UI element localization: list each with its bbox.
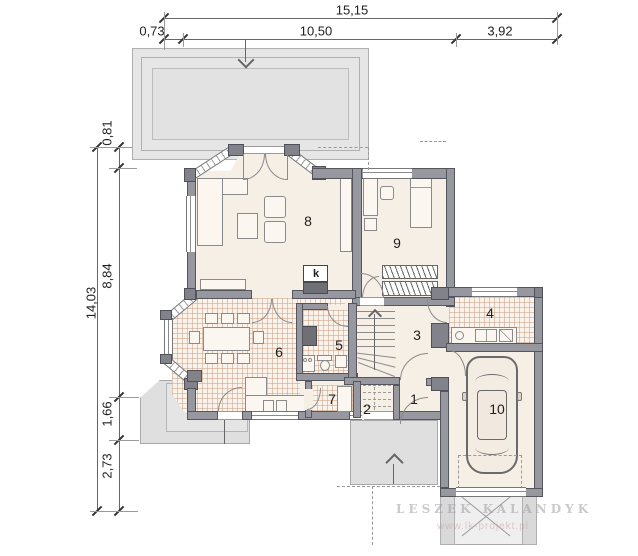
room-label-9: 9 — [393, 235, 401, 251]
wardrobe — [382, 281, 438, 296]
apron-side-strip — [440, 490, 455, 545]
wall-south — [187, 411, 218, 420]
wall-corner-block — [228, 144, 244, 156]
washing-machine-dial — [303, 358, 307, 362]
room-label-8: 8 — [304, 213, 312, 229]
side-porch-arrow-stem — [224, 418, 225, 444]
dining-chair — [237, 353, 250, 364]
dim-top-seg2: 10,50 — [300, 24, 333, 39]
bed — [410, 176, 432, 228]
watermark-site: www.lk-projekt.pl — [437, 521, 529, 532]
dim-extension — [109, 168, 137, 169]
roof-overhang-dash — [337, 486, 440, 487]
roof-dash-top — [318, 147, 368, 148]
roof-overhang-dash — [372, 486, 373, 545]
sideboard — [200, 279, 246, 290]
stair-dashed-tread — [358, 392, 396, 393]
stair-tread — [357, 339, 395, 340]
bedside-cabinet — [364, 218, 377, 231]
dining-chair — [221, 313, 234, 324]
room-label-2: 2 — [363, 401, 371, 417]
wall-corner-block — [160, 310, 172, 320]
roof-dash-top — [368, 147, 369, 170]
porch-door-opening — [218, 411, 242, 420]
watermark-author: LESZEK KALANDYK — [396, 502, 592, 516]
stair-tread — [357, 332, 395, 333]
dim-left-total: 14,03 — [84, 287, 99, 320]
dim-line-top-segments — [164, 39, 557, 40]
washing-machine-dial — [308, 358, 312, 362]
utility-cabinet — [337, 386, 352, 412]
terrace-door-threshold — [240, 146, 288, 154]
dim-line-left-total — [97, 147, 98, 511]
dim-top-seg3: 3,92 — [487, 24, 512, 39]
stair-tread — [357, 346, 395, 347]
garage-dashed-zone — [458, 455, 522, 489]
terrace-door-leaf — [243, 154, 244, 180]
coffee-table — [237, 213, 258, 239]
dim-line-top-total — [164, 18, 557, 19]
wall-utility-east — [353, 381, 361, 418]
roof-dash-top — [420, 141, 446, 142]
porch-corner-block — [187, 370, 202, 382]
wall-wc-stairs — [348, 303, 357, 381]
floor-plan: 1 2 3 4 5 6 7 8 9 10 k 15,15 0,73 10,50 … — [0, 0, 638, 556]
stair-tread — [357, 325, 395, 326]
dim-left-seg3: 1,66 — [100, 401, 115, 426]
dim-extension — [90, 511, 138, 512]
wall-south — [242, 411, 252, 420]
car-mirror — [517, 392, 522, 401]
dining-chair — [205, 353, 218, 364]
room-label-6: 6 — [275, 344, 283, 360]
pillar — [431, 287, 449, 300]
garage-door — [456, 487, 526, 497]
car-windshield — [475, 440, 509, 455]
room-label-7: 7 — [328, 391, 336, 407]
chimney-shaft — [302, 326, 317, 346]
dim-extension — [109, 397, 139, 398]
wall-corner-block — [160, 354, 172, 364]
bedroom-door-opening — [360, 297, 384, 306]
dim-extension — [90, 147, 132, 148]
dim-extension — [109, 440, 139, 441]
double-sink-divider — [486, 330, 487, 341]
room-label-5: 5 — [335, 337, 343, 353]
desk-chair — [380, 186, 394, 200]
dim-left-seg1: 0,81 — [100, 120, 115, 145]
washbasin — [335, 355, 347, 368]
dining-table — [203, 327, 250, 351]
apron-side-strip — [522, 490, 537, 545]
wall-garage-west — [440, 391, 449, 488]
window-living-west — [186, 196, 196, 252]
room-label-3: 3 — [413, 327, 421, 343]
wardrobe — [382, 265, 438, 279]
kitchen-sink-round — [455, 331, 464, 340]
wall-corner-block — [534, 287, 543, 298]
toilet-bowl — [320, 360, 330, 371]
wall-corner-block — [184, 168, 196, 182]
armchair — [264, 196, 286, 218]
dining-chair — [237, 313, 250, 324]
pillar — [431, 377, 449, 391]
dim-extension — [183, 33, 184, 47]
car-rear-window — [475, 374, 509, 389]
dim-left-seg2: 8,84 — [100, 263, 115, 288]
wall-living-dining — [196, 290, 252, 299]
wall-kitchen-garage — [446, 343, 543, 352]
dining-chair — [205, 313, 218, 324]
window-kitchen-north — [472, 287, 517, 297]
dim-top-seg1: 0,73 — [139, 24, 164, 39]
room-label-4: 4 — [486, 305, 494, 321]
room-label-10: 10 — [489, 401, 505, 417]
window-bedroom-north — [363, 168, 412, 179]
dining-chair — [221, 353, 234, 364]
fireplace-block — [303, 282, 328, 294]
car-mirror — [462, 392, 467, 401]
dim-line-left-segments — [119, 147, 120, 511]
dining-chair — [253, 331, 264, 344]
sofa-arm-left — [197, 178, 223, 246]
wall-vestibule-hall — [393, 385, 400, 420]
dim-extension — [557, 12, 558, 45]
stair-dashed-tread — [358, 399, 396, 400]
stove — [499, 329, 513, 342]
wall-wc-west — [296, 303, 303, 381]
terrace-deck — [152, 68, 349, 140]
wall-unit — [340, 176, 352, 252]
stair-dashed-tread — [358, 385, 396, 386]
dim-left-seg4: 2,73 — [100, 453, 115, 478]
dim-top-total: 15,15 — [336, 3, 369, 18]
dim-extension — [456, 33, 457, 47]
armchair — [264, 221, 286, 243]
entrance-porch-arrow-stem — [393, 464, 394, 484]
dining-chair — [189, 331, 200, 344]
desk — [363, 176, 378, 216]
wall-garage-east — [534, 287, 543, 497]
terrace-door-leaf — [287, 154, 288, 180]
bed-pillow-line — [411, 187, 431, 188]
fireplace-label: k — [313, 268, 319, 280]
window-dining-south — [252, 411, 298, 420]
wall-corner-block — [184, 288, 196, 300]
room-label-1: 1 — [410, 391, 418, 407]
